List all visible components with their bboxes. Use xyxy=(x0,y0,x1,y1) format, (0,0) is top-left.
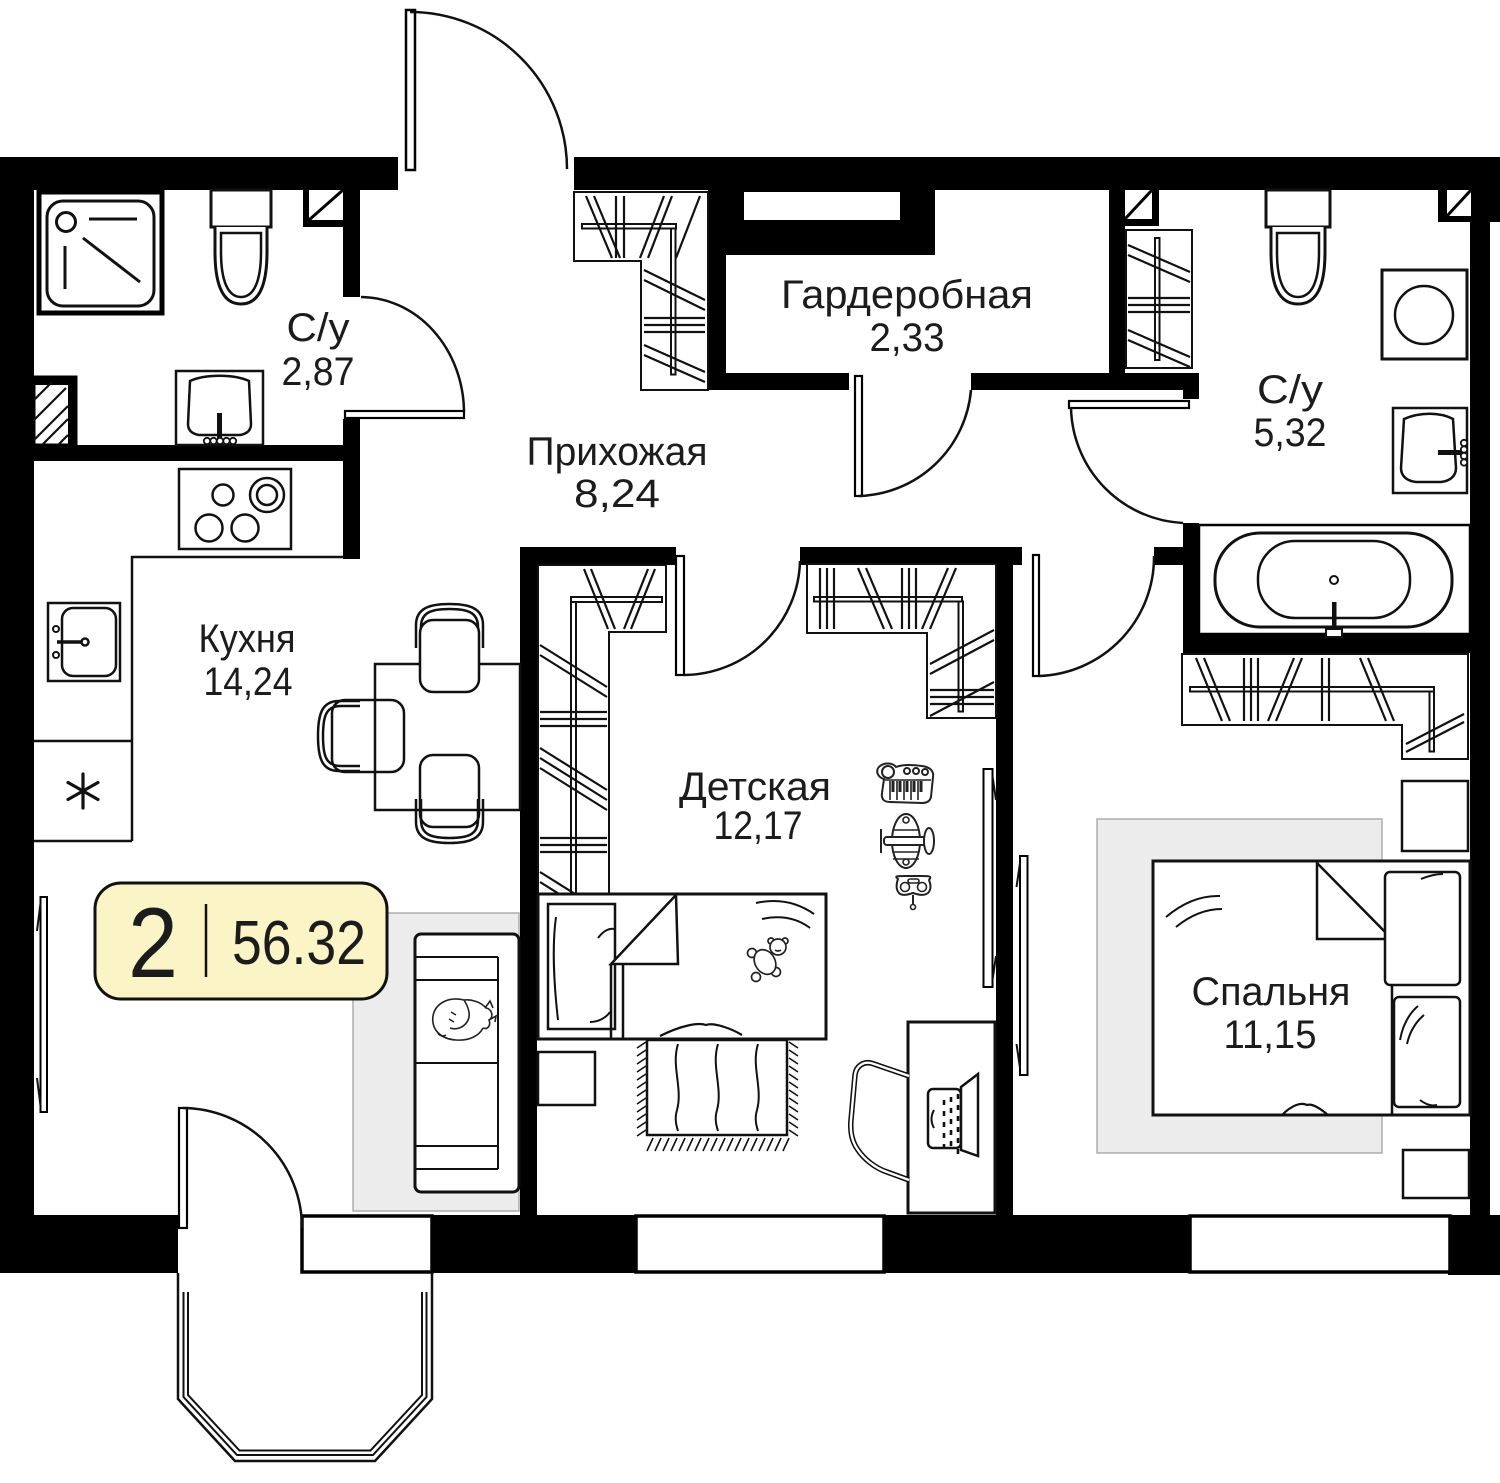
svg-text:12,17: 12,17 xyxy=(714,804,803,848)
svg-text:11,15: 11,15 xyxy=(1224,1013,1317,1057)
svg-text:56.32: 56.32 xyxy=(232,909,366,978)
svg-text:2,33: 2,33 xyxy=(870,316,945,360)
svg-text:Спальня: Спальня xyxy=(1192,970,1351,1014)
svg-text:14,24: 14,24 xyxy=(204,660,293,704)
svg-text:С/у: С/у xyxy=(1257,368,1323,412)
svg-text:2,87: 2,87 xyxy=(282,350,355,394)
svg-text:2: 2 xyxy=(128,887,178,998)
svg-text:8,24: 8,24 xyxy=(574,472,660,516)
svg-text:Гардеробная: Гардеробная xyxy=(781,273,1033,317)
svg-text:Прихожая: Прихожая xyxy=(527,430,708,474)
svg-text:Кухня: Кухня xyxy=(199,617,296,661)
svg-text:5,32: 5,32 xyxy=(1254,411,1327,455)
svg-text:Детская: Детская xyxy=(679,765,831,809)
svg-text:С/у: С/у xyxy=(287,306,350,350)
